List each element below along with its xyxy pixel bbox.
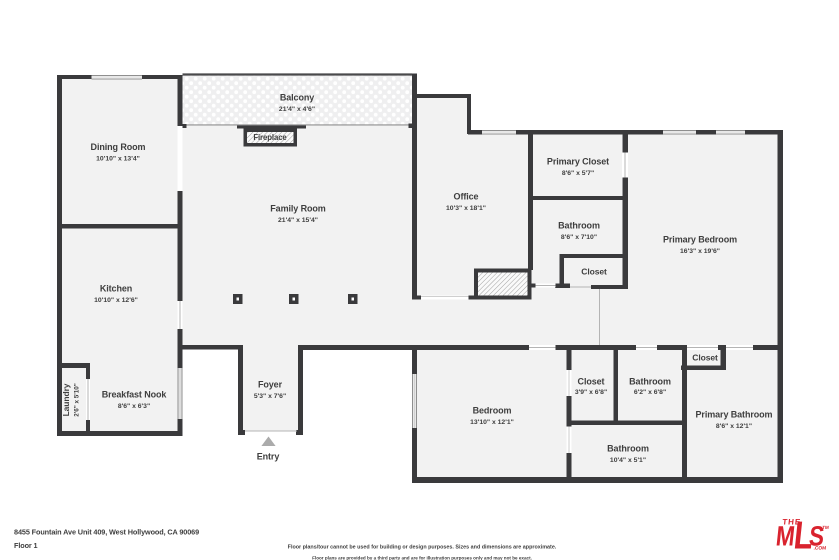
svg-text:21'4" x 4'6": 21'4" x 4'6"	[279, 106, 315, 113]
svg-text:Kitchen: Kitchen	[100, 283, 132, 293]
svg-text:Primary Closet: Primary Closet	[547, 156, 609, 166]
svg-text:Laundry: Laundry	[61, 383, 71, 416]
svg-text:Bathroom: Bathroom	[558, 220, 600, 230]
svg-text:TM: TM	[822, 525, 829, 530]
svg-text:Floor plans are provided by a: Floor plans are provided by a third part…	[312, 556, 532, 560]
svg-text:Bedroom: Bedroom	[473, 405, 512, 415]
svg-text:10'4" x 5'1": 10'4" x 5'1"	[610, 457, 646, 464]
svg-text:10'10" x 12'6": 10'10" x 12'6"	[94, 297, 138, 304]
svg-text:8455 Fountain Ave Unit 409, We: 8455 Fountain Ave Unit 409, West Hollywo…	[14, 528, 199, 537]
svg-text:Primary Bedroom: Primary Bedroom	[663, 234, 737, 244]
svg-text:8'6" x 12'1": 8'6" x 12'1"	[716, 423, 752, 430]
svg-text:10'10" x 13'4": 10'10" x 13'4"	[96, 155, 140, 162]
svg-text:13'10" x 12'1": 13'10" x 12'1"	[470, 419, 514, 426]
svg-text:3'9" x 6'8": 3'9" x 6'8"	[575, 389, 607, 396]
svg-text:10'3" x 18'1": 10'3" x 18'1"	[446, 205, 486, 212]
svg-text:Office: Office	[454, 191, 479, 201]
svg-text:Dining Room: Dining Room	[91, 142, 146, 152]
svg-text:21'4" x 15'4": 21'4" x 15'4"	[278, 217, 318, 224]
svg-text:Closet: Closet	[581, 266, 607, 276]
svg-text:8'6" x 7'10": 8'6" x 7'10"	[561, 234, 597, 241]
svg-text:Fireplace: Fireplace	[253, 133, 287, 142]
svg-text:Bathroom: Bathroom	[607, 443, 649, 453]
svg-text:Bathroom: Bathroom	[629, 376, 671, 386]
svg-text:8'6" x 5'7": 8'6" x 5'7"	[562, 170, 594, 177]
svg-text:Closet: Closet	[692, 352, 718, 362]
svg-text:5'3" x 7'6": 5'3" x 7'6"	[254, 393, 286, 400]
svg-text:16'3" x 19'6": 16'3" x 19'6"	[680, 248, 720, 255]
svg-text:Breakfast Nook: Breakfast Nook	[102, 389, 168, 399]
svg-text:Floor 1: Floor 1	[14, 541, 38, 550]
svg-text:2'6" x 5'10": 2'6" x 5'10"	[74, 383, 81, 416]
svg-text:Entry: Entry	[257, 452, 280, 462]
svg-text:8'6" x 6'3": 8'6" x 6'3"	[118, 403, 150, 410]
svg-text:Family Room: Family Room	[270, 203, 326, 213]
svg-text:6'2" x 6'8": 6'2" x 6'8"	[634, 389, 666, 396]
svg-text:Floor plans/tour cannot be use: Floor plans/tour cannot be used for buil…	[288, 545, 557, 551]
svg-text:Foyer: Foyer	[258, 379, 283, 389]
svg-text:Primary Bathroom: Primary Bathroom	[696, 409, 773, 419]
svg-text:.COM: .COM	[813, 546, 826, 552]
svg-text:Closet: Closet	[578, 376, 605, 386]
svg-text:Balcony: Balcony	[280, 92, 314, 102]
